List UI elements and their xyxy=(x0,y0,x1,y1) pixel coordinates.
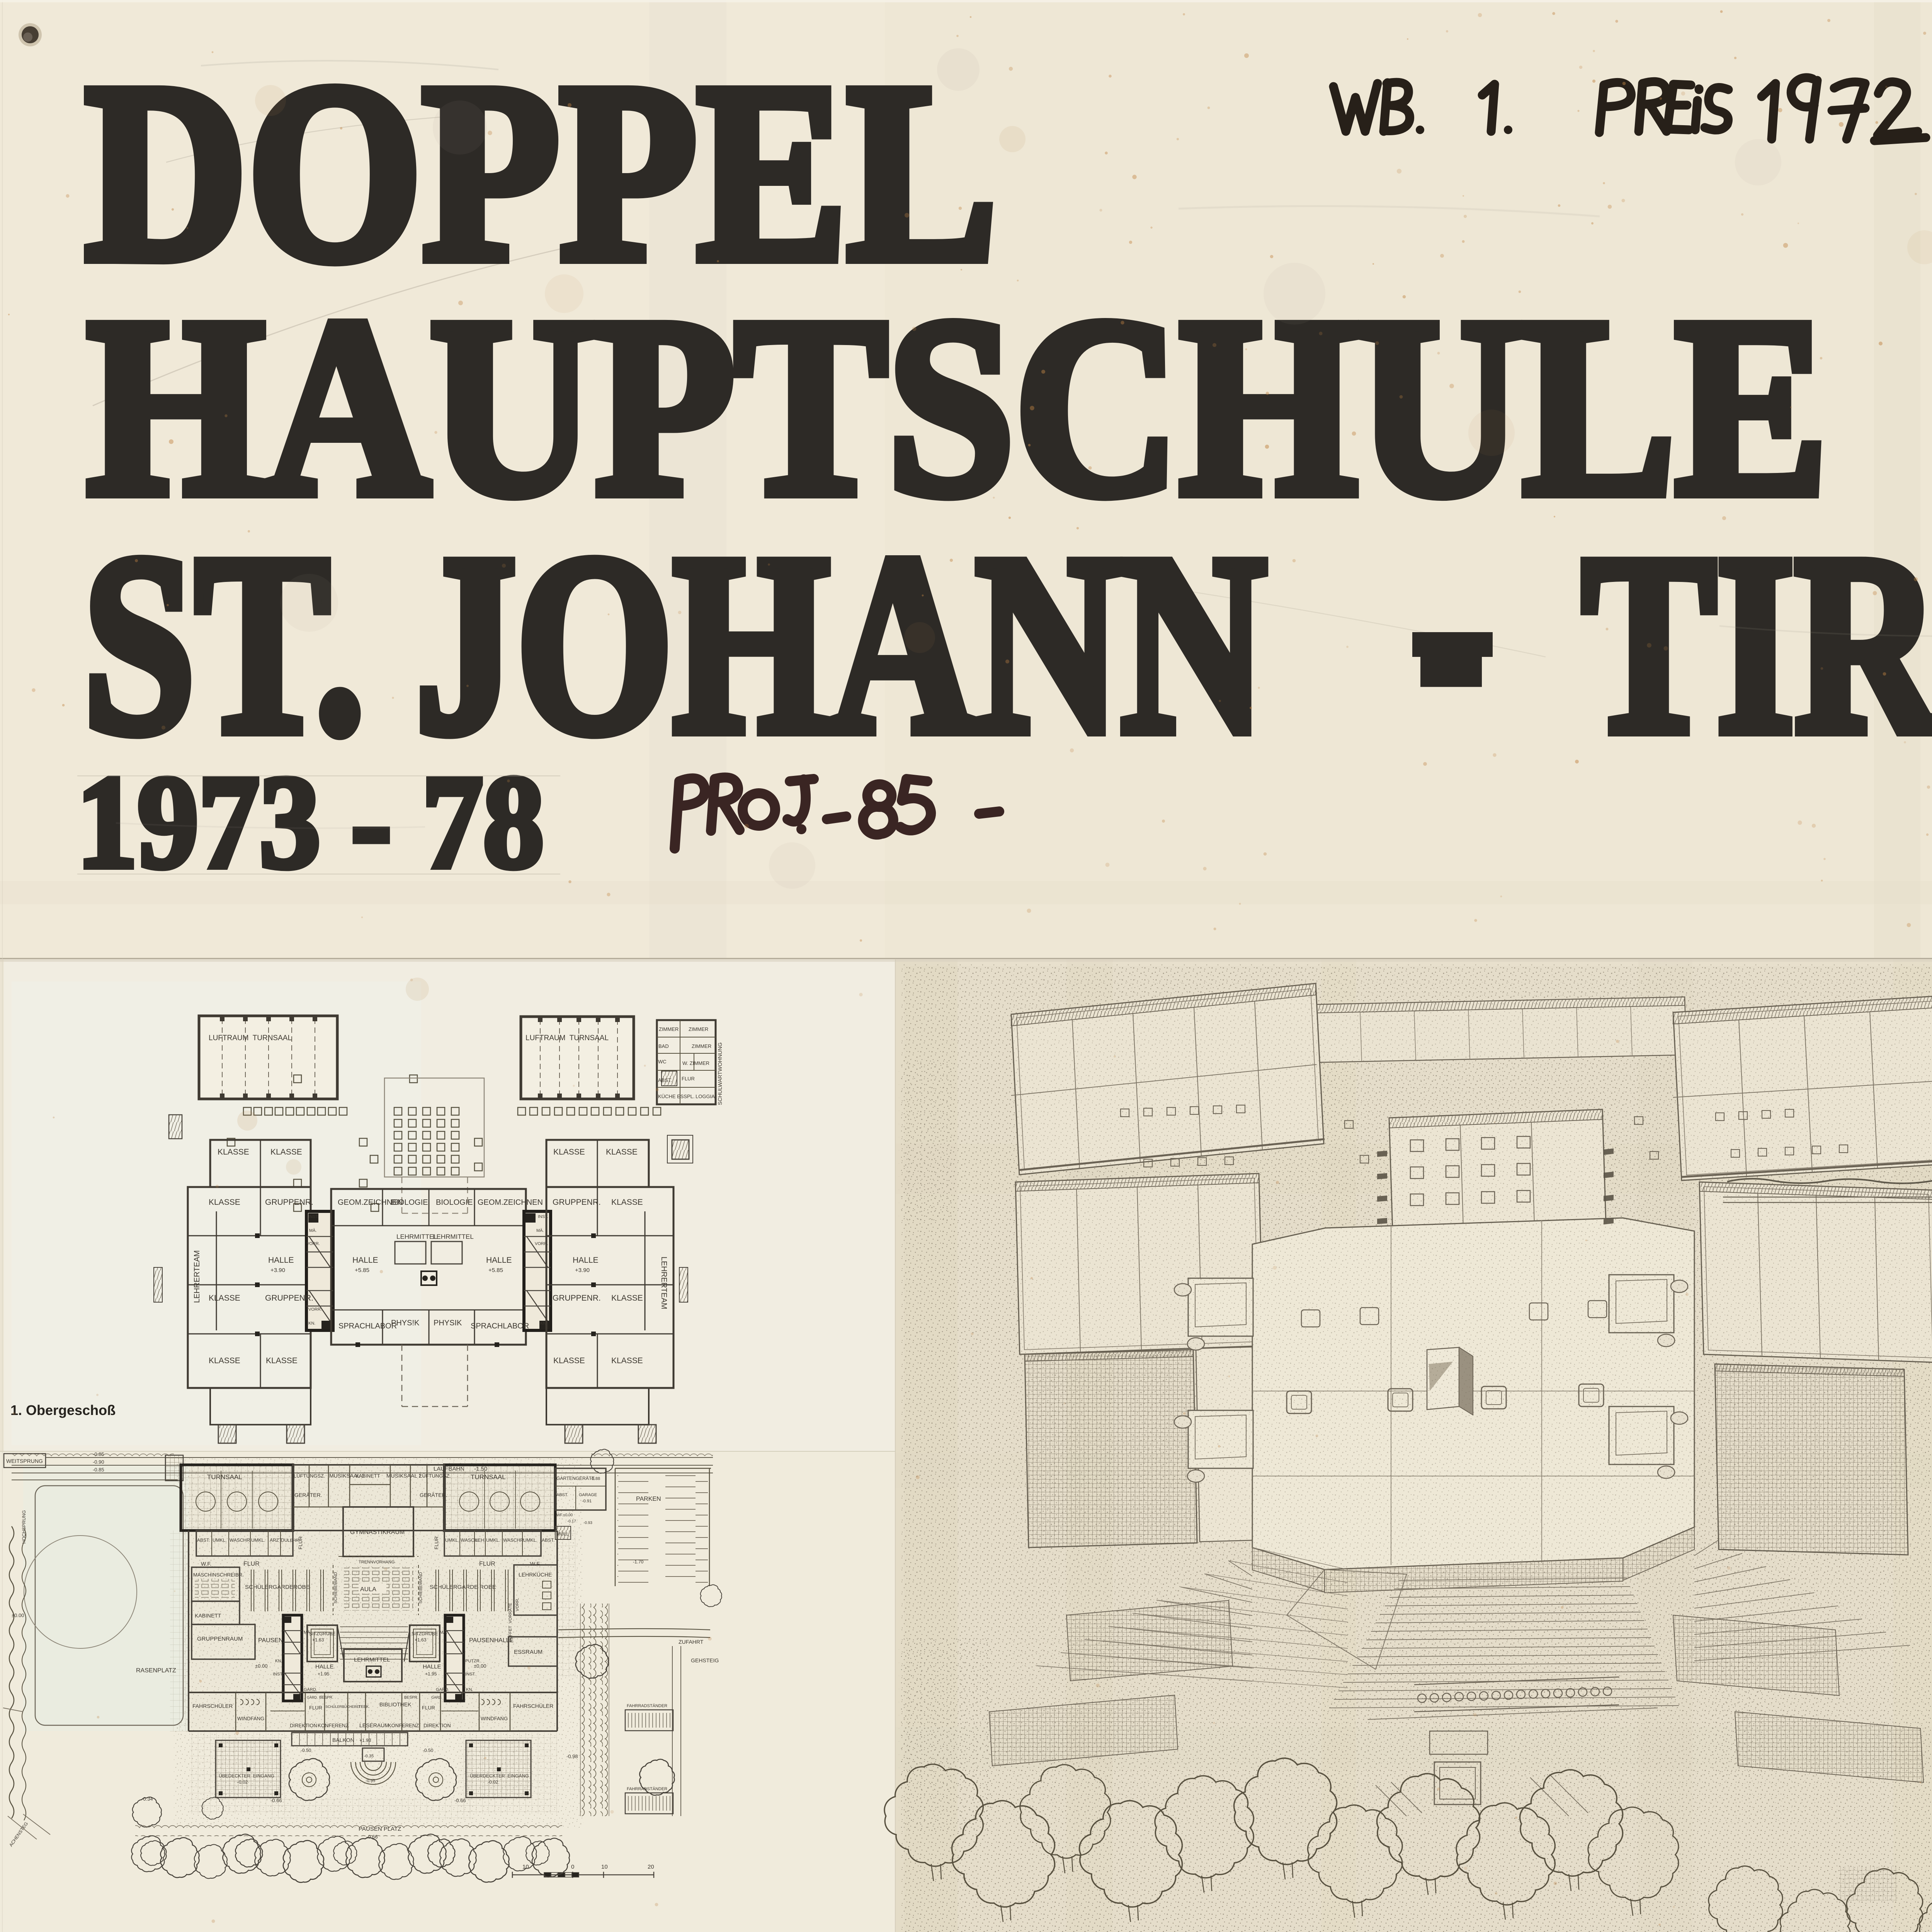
svg-text:ST. JOHANN - TIROL: ST. JOHANN - TIROL xyxy=(83,502,1932,786)
svg-text:WF.±0.00: WF.±0.00 xyxy=(556,1513,573,1517)
svg-text:MÄ.: MÄ. xyxy=(440,1630,447,1635)
svg-text:ABST.: ABST. xyxy=(556,1493,568,1497)
svg-text:PARKEN: PARKEN xyxy=(636,1496,661,1502)
svg-text:UMKL.: UMKL. xyxy=(486,1537,500,1543)
svg-text:VORR.: VORR. xyxy=(515,1598,520,1611)
svg-text:INST.: INST. xyxy=(465,1672,476,1677)
svg-text:PAUSENHALLE: PAUSENHALLE xyxy=(469,1637,514,1644)
svg-text:UMKL.: UMKL. xyxy=(523,1537,537,1543)
svg-text:LEHRERTEAM: LEHRERTEAM xyxy=(193,1250,201,1303)
svg-text:1973 - 78: 1973 - 78 xyxy=(77,748,544,896)
svg-text:VORR.: VORR. xyxy=(306,1242,320,1246)
svg-text:GERÄTER.: GERÄTER. xyxy=(294,1492,322,1498)
svg-text:WC: WC xyxy=(658,1059,667,1065)
svg-text:FLUR: FLUR xyxy=(479,1561,495,1567)
svg-text:LEHRMITTEL: LEHRMITTEL xyxy=(433,1233,474,1240)
svg-text:KLASSE: KLASSE xyxy=(270,1148,302,1156)
svg-text:-0.90: -0.90 xyxy=(93,1459,104,1465)
svg-text:10: 10 xyxy=(601,1864,608,1870)
svg-text:SCHÜLERBÜCHEREI: SCHÜLERBÜCHEREI xyxy=(325,1705,360,1709)
svg-text:KLASSE: KLASSE xyxy=(606,1148,638,1156)
svg-text:FAHRRADSTÄNDER: FAHRRADSTÄNDER xyxy=(627,1787,667,1791)
svg-text:TEEK.: TEEK. xyxy=(359,1705,370,1709)
svg-text:GRUPPENR.: GRUPPENR. xyxy=(265,1294,313,1303)
svg-text:HALLE: HALLE xyxy=(352,1256,378,1265)
svg-text:LÜFTUNGSZ.: LÜFTUNGSZ. xyxy=(419,1473,451,1479)
svg-text:INST.: INST. xyxy=(538,1214,548,1219)
svg-text:UMKL.: UMKL. xyxy=(251,1537,265,1543)
svg-text:GARAGE: GARAGE xyxy=(579,1493,597,1497)
svg-text:MÄ.: MÄ. xyxy=(536,1228,544,1233)
svg-text:+1.95: +1.95 xyxy=(318,1671,330,1677)
svg-text:KONFERENZ: KONFERENZ xyxy=(388,1723,419,1728)
svg-text:MÄ.: MÄ. xyxy=(309,1228,317,1233)
svg-text:KLASSE: KLASSE xyxy=(611,1356,643,1365)
svg-text:ESSPL.: ESSPL. xyxy=(677,1094,695,1099)
svg-text:10: 10 xyxy=(522,1864,529,1870)
svg-text:20: 20 xyxy=(648,1864,654,1870)
svg-text:KLASSE: KLASSE xyxy=(553,1356,585,1365)
svg-text:SCHULWARTWOHNUNG: SCHULWARTWOHNUNG xyxy=(717,1043,723,1105)
svg-text:SPRACHLABOR: SPRACHLABOR xyxy=(471,1322,529,1330)
svg-text:FAHRRADSTÄNDER: FAHRRADSTÄNDER xyxy=(627,1704,667,1708)
svg-text:+1.95: +1.95 xyxy=(425,1671,437,1677)
svg-text:ARZT: ARZT xyxy=(270,1537,282,1543)
svg-text:GEHSTEIG: GEHSTEIG xyxy=(691,1657,719,1663)
svg-text:KONFERENZ: KONFERENZ xyxy=(318,1723,349,1728)
svg-text:KN.: KN. xyxy=(540,1321,547,1326)
svg-text:-0.85: -0.85 xyxy=(93,1467,104,1473)
svg-text:LEHRMITTEL: LEHRMITTEL xyxy=(354,1656,390,1663)
svg-text:+1.63: +1.63 xyxy=(312,1637,324,1643)
svg-text:GARTENGERÄTE: GARTENGERÄTE xyxy=(556,1476,595,1481)
svg-text:FLUR: FLUR xyxy=(422,1705,435,1711)
svg-text:GARD.: GARD. xyxy=(307,1696,318,1699)
svg-text:BESPR.: BESPR. xyxy=(404,1696,418,1700)
svg-text:±0.00: ±0.00 xyxy=(255,1663,267,1669)
svg-text:KABINETT: KABINETT xyxy=(355,1473,380,1479)
svg-text:0: 0 xyxy=(571,1864,574,1870)
svg-text:FLUR: FLUR xyxy=(309,1705,322,1711)
svg-text:TURNSAAL: TURNSAAL xyxy=(471,1473,506,1481)
svg-text:LEHRKÜCHE: LEHRKÜCHE xyxy=(519,1571,552,1578)
svg-text:UMKL.: UMKL. xyxy=(213,1537,227,1543)
svg-text:TURNSAAL: TURNSAAL xyxy=(207,1473,242,1481)
svg-text:LOGGIA: LOGGIA xyxy=(696,1094,715,1099)
svg-text:HALLE: HALLE xyxy=(315,1663,334,1670)
svg-text:KABINETT: KABINETT xyxy=(195,1612,221,1619)
svg-text:GRUPPENRAUM: GRUPPENRAUM xyxy=(197,1636,243,1642)
svg-text:+3.90: +3.90 xyxy=(575,1267,590,1274)
svg-text:BIOLOGIE: BIOLOGIE xyxy=(436,1198,473,1207)
svg-text:BESPR.: BESPR. xyxy=(319,1696,333,1700)
svg-text:MASCHINSCHREIBR.: MASCHINSCHREIBR. xyxy=(193,1572,244,1578)
svg-text:KLASSE: KLASSE xyxy=(218,1148,249,1156)
svg-text:ABST.: ABST. xyxy=(542,1537,554,1543)
svg-text:MUSIKSAAL 2: MUSIKSAAL 2 xyxy=(386,1473,422,1479)
svg-text:SITZGRUBE: SITZGRUBE xyxy=(309,1631,336,1636)
svg-text:LUFTRAUM TURNSAAL: LUFTRAUM TURNSAAL xyxy=(209,1034,292,1042)
svg-text:DIREKTION: DIREKTION xyxy=(290,1723,317,1728)
svg-text:WINDFANG: WINDFANG xyxy=(237,1716,264,1721)
svg-text:-0.50: -0.50 xyxy=(301,1748,311,1753)
svg-text:GARD.: GARD. xyxy=(436,1687,449,1692)
svg-text:ESSRAUM: ESSRAUM xyxy=(514,1649,543,1655)
svg-text:VORR.: VORR. xyxy=(535,1242,548,1246)
svg-text:KLASSE: KLASSE xyxy=(209,1294,240,1303)
svg-text:FLUR: FLUR xyxy=(434,1536,439,1549)
svg-text:BIBLIOTHEK: BIBLIOTHEK xyxy=(379,1701,412,1708)
svg-text:ZIMMER: ZIMMER xyxy=(689,1026,708,1032)
svg-text:GARD.: GARD. xyxy=(304,1687,317,1692)
svg-text:FLUR: FLUR xyxy=(298,1536,303,1549)
svg-text:INST.: INST. xyxy=(273,1672,283,1677)
svg-text:+1.93: +1.93 xyxy=(359,1738,371,1743)
svg-text:INST.: INST. xyxy=(308,1214,319,1219)
svg-text:HALLE: HALLE xyxy=(573,1256,599,1265)
svg-text:+5.85: +5.85 xyxy=(355,1267,369,1274)
svg-text:FAHRSCHÜLER: FAHRSCHÜLER xyxy=(192,1702,233,1709)
svg-text:BAD: BAD xyxy=(658,1043,669,1049)
svg-text:W. ZIMMER: W. ZIMMER xyxy=(682,1060,709,1066)
svg-text:MÄ.: MÄ. xyxy=(304,1630,311,1635)
svg-text:1. Obergeschoß: 1. Obergeschoß xyxy=(10,1402,116,1418)
svg-text:AULA: AULA xyxy=(360,1586,376,1593)
svg-text:PHYSIK: PHYSIK xyxy=(434,1319,462,1327)
svg-text:PHYS!K: PHYS!K xyxy=(391,1319,420,1327)
svg-text:LEHRMITTEL: LEHRMITTEL xyxy=(396,1233,437,1240)
svg-text:SCHÜLERGARDE ROBE: SCHÜLERGARDE ROBE xyxy=(430,1583,496,1590)
svg-text:-1.70: -1.70 xyxy=(633,1559,644,1565)
svg-text:SCHÜLERGARDEROBE: SCHÜLERGARDEROBE xyxy=(245,1583,310,1590)
svg-text:FAHRSCHÜLER: FAHRSCHÜLER xyxy=(513,1702,553,1709)
svg-text:KLASSE: KLASSE xyxy=(611,1198,643,1207)
svg-text:GEOM.ZEICHNEN: GEOM.ZEICHNEN xyxy=(478,1198,543,1207)
svg-text:ZIMMER: ZIMMER xyxy=(659,1026,679,1032)
svg-text:W.F.: W.F. xyxy=(530,1561,541,1567)
svg-text:-0.17: -0.17 xyxy=(567,1519,576,1524)
svg-text:SITZGRUBE: SITZGRUBE xyxy=(412,1631,438,1636)
svg-text:SPRACHLABOR: SPRACHLABOR xyxy=(338,1322,397,1330)
svg-text:KÜCHE: KÜCHE xyxy=(658,1094,676,1099)
svg-text:GRUPPENR.: GRUPPENR. xyxy=(553,1294,601,1303)
svg-text:KLASSE: KLASSE xyxy=(553,1148,585,1156)
svg-text:LUFTRAUM TURNSAAL: LUFTRAUM TURNSAAL xyxy=(526,1034,609,1042)
svg-text:BALKON: BALKON xyxy=(332,1737,354,1743)
svg-text:ABST.: ABST. xyxy=(197,1537,210,1543)
svg-text:KLASSE: KLASSE xyxy=(209,1198,240,1207)
svg-text:FLUR: FLUR xyxy=(682,1076,695,1082)
svg-text:DIREKTION: DIREKTION xyxy=(423,1723,451,1728)
svg-text:GERÄTER.: GERÄTER. xyxy=(420,1492,447,1498)
svg-text:-0.34: -0.34 xyxy=(141,1796,153,1802)
svg-text:KLASSE: KLASSE xyxy=(611,1294,643,1303)
svg-text:SCHIEBEWAND: SCHIEBEWAND xyxy=(333,1572,338,1604)
svg-text:UMKL.: UMKL. xyxy=(445,1537,459,1543)
svg-text:GARD.: GARD. xyxy=(431,1696,442,1699)
svg-text:-0.93: -0.93 xyxy=(583,1521,592,1525)
svg-text:FLUR: FLUR xyxy=(243,1561,260,1567)
svg-text:-0.35: -0.35 xyxy=(364,1754,374,1759)
svg-text:KN.: KN. xyxy=(308,1321,315,1326)
svg-text:ZUFAHRT: ZUFAHRT xyxy=(679,1639,704,1645)
svg-text:+5.85: +5.85 xyxy=(488,1267,503,1274)
svg-text:LEHRERTEAM: LEHRERTEAM xyxy=(660,1257,668,1309)
svg-text:-0.88: -0.88 xyxy=(590,1476,600,1481)
svg-text:WASCHR.: WASCHR. xyxy=(503,1537,525,1543)
svg-text:GRUPPENR.: GRUPPENR. xyxy=(553,1198,601,1207)
svg-text:+1.63: +1.63 xyxy=(415,1637,427,1643)
svg-text:HALLE: HALLE xyxy=(423,1663,441,1670)
svg-text:KLASSE: KLASSE xyxy=(209,1356,240,1365)
svg-text:-0.95: -0.95 xyxy=(366,1779,375,1783)
svg-text:W.F.: W.F. xyxy=(201,1561,211,1567)
svg-text:HALLE: HALLE xyxy=(268,1256,294,1265)
svg-text:-0.50: -0.50 xyxy=(423,1748,434,1753)
svg-text:-0.98: -0.98 xyxy=(566,1753,578,1759)
svg-text:LÜFTUNGSZ.: LÜFTUNGSZ. xyxy=(294,1473,325,1479)
svg-text:GYMNASTIKRAUM: GYMNASTIKRAUM xyxy=(350,1529,405,1536)
svg-text:+3.90: +3.90 xyxy=(270,1267,285,1274)
svg-text:HALLE: HALLE xyxy=(486,1256,512,1265)
svg-text:KN.: KN. xyxy=(466,1687,473,1692)
svg-text:LESERAUM: LESERAUM xyxy=(359,1722,389,1728)
svg-text:WASCHR.: WASCHR. xyxy=(230,1537,251,1543)
svg-text:LEH.: LEH. xyxy=(475,1537,486,1543)
svg-text:KLASSE: KLASSE xyxy=(266,1356,298,1365)
svg-text:HOCHSPRUNG: HOCHSPRUNG xyxy=(21,1510,27,1544)
svg-text:±0.00: ±0.00 xyxy=(474,1663,486,1669)
svg-text:BIOLOGIE: BIOLOGIE xyxy=(391,1198,428,1207)
svg-text:WINDFANG: WINDFANG xyxy=(481,1716,508,1721)
svg-text:SCHIEBEWAND: SCHIEBEWAND xyxy=(418,1572,423,1604)
svg-text:TRENNVORHANG: TRENNVORHANG xyxy=(359,1560,395,1565)
svg-text:ZIMMER: ZIMMER xyxy=(692,1043,711,1049)
svg-text:KN.: KN. xyxy=(275,1659,282,1663)
svg-text:-0.91: -0.91 xyxy=(582,1499,592,1503)
svg-text:WEITSPRUNG: WEITSPRUNG xyxy=(6,1458,43,1464)
svg-text:GRUPPENR.: GRUPPENR. xyxy=(265,1198,313,1207)
svg-text:VORR.: VORR. xyxy=(308,1307,322,1312)
